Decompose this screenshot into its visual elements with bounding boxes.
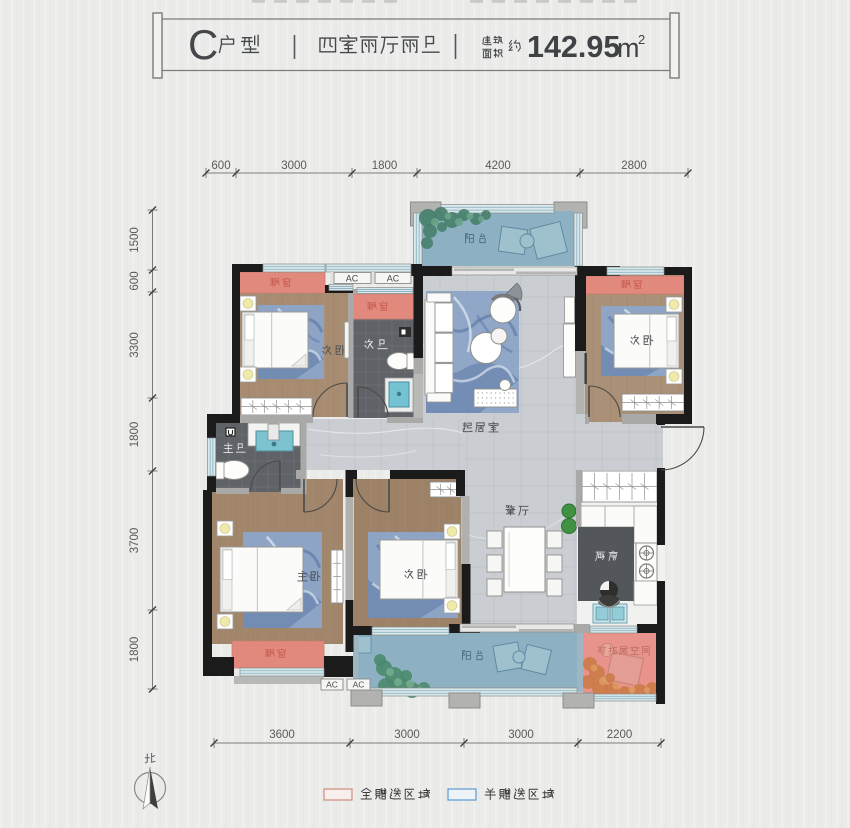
svg-text:3000: 3000 (394, 729, 420, 741)
svg-text:3600: 3600 (269, 729, 295, 741)
svg-text:2: 2 (638, 32, 645, 47)
svg-text:3700: 3700 (129, 528, 141, 554)
svg-text:600: 600 (211, 160, 230, 172)
svg-text:3000: 3000 (281, 160, 307, 172)
svg-text:142.95: 142.95 (527, 30, 620, 64)
svg-text:2800: 2800 (621, 160, 647, 172)
svg-text:1500: 1500 (129, 227, 141, 253)
svg-text:AC: AC (387, 274, 400, 284)
svg-text:1800: 1800 (129, 637, 141, 663)
svg-text:AC: AC (353, 680, 365, 690)
svg-text:3000: 3000 (508, 729, 534, 741)
svg-text:1800: 1800 (129, 422, 141, 448)
svg-text:AC: AC (346, 274, 359, 284)
svg-text:1800: 1800 (372, 160, 398, 172)
svg-text:AC: AC (326, 680, 338, 690)
svg-text:m: m (617, 33, 640, 63)
svg-text:4200: 4200 (485, 160, 511, 172)
svg-text:600: 600 (129, 271, 141, 290)
svg-text:2200: 2200 (607, 729, 633, 741)
svg-text:C: C (188, 21, 218, 68)
svg-text:3300: 3300 (129, 332, 141, 358)
